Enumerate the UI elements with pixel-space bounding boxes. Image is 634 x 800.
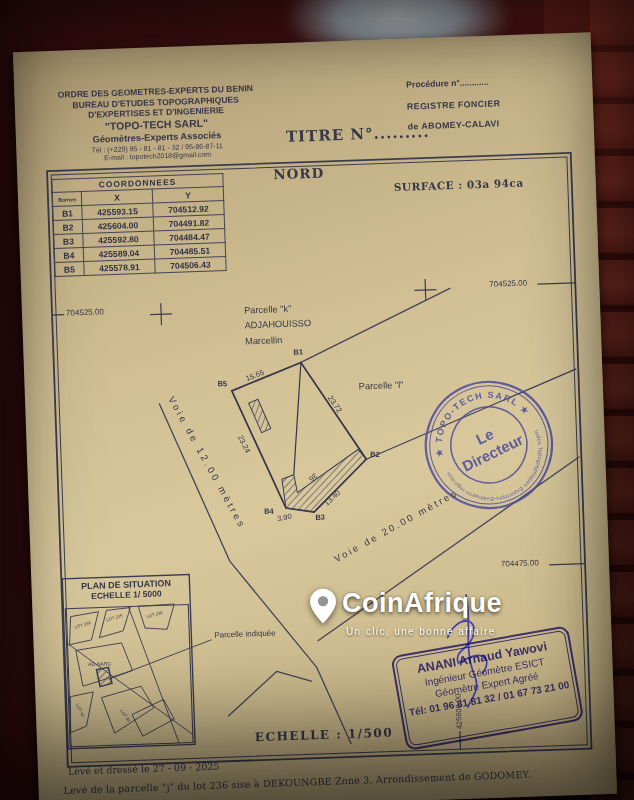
photo-of-survey-document: ORDRE DES GEOMETRES-EXPERTS DU BENIN BUR…: [0, 0, 634, 800]
parcel-k-owner: ADJAHOUISSO: [244, 318, 311, 331]
vertex-b5: B5: [217, 380, 227, 389]
inset-title: PLAN DE SITUATION ECHELLE 1/ 5000: [64, 578, 188, 603]
watermark-slogan: Un clic, une bonne affaire: [346, 626, 496, 637]
parcel-k-line: Parcelle "k": [244, 303, 311, 316]
grid-label-right-y-top: 704525.00: [489, 280, 527, 290]
borne-id: B5: [55, 261, 84, 276]
vertex-b1: B1: [293, 348, 303, 357]
location-pin-icon: [310, 588, 336, 624]
borne-x: 425578.91: [84, 259, 155, 275]
parcel-polygon: [231, 360, 368, 515]
col-header-bornes: Bornes: [52, 192, 81, 207]
vertex-b3: B3: [315, 514, 325, 523]
neighbor-parcel-k: Parcelle "k" ADJAHOUISSO Marcellin: [244, 303, 312, 347]
inset-lot-label: LOT 39: [119, 709, 132, 724]
grid-label-right-y-bottom: 704475.00: [501, 559, 539, 569]
north-label: NORD: [273, 166, 325, 183]
vertex-b2: B2: [370, 451, 380, 460]
grid-label-left-y: 704525.00: [66, 308, 104, 318]
watermark-brand: CoinAfrique: [342, 588, 502, 619]
borne-id: B2: [53, 219, 82, 234]
pointer-leader-line: [108, 640, 213, 680]
inset-lot-label: LOT 40: [75, 703, 86, 719]
borne-id: B3: [54, 233, 83, 248]
boundary-marker-hatch: [249, 399, 271, 432]
inset-lot-label: AD-NARC: [88, 660, 111, 667]
inset-lot-label: LOT 235: [106, 613, 124, 623]
borne-id: B1: [53, 206, 82, 221]
borne-y: 704506.43: [155, 257, 226, 273]
neighbor-parcel-l: Parcelle "l": [359, 380, 404, 392]
survey-plan-paper: ORDRE DES GEOMETRES-EXPERTS DU BENIN BUR…: [13, 32, 617, 800]
watermark: CoinAfrique Un clic, une bonne affaire: [310, 588, 336, 628]
borne-id: B4: [54, 247, 83, 262]
inset-lot-label: LOT 238: [146, 610, 164, 619]
coordinates-table: COORDONNEES Bornes X Y B1425593.15704512…: [51, 173, 226, 277]
inset-lot-label: LOT 236: [74, 620, 92, 630]
vertex-b4: B4: [264, 507, 274, 516]
indicated-parcel: [96, 667, 112, 687]
